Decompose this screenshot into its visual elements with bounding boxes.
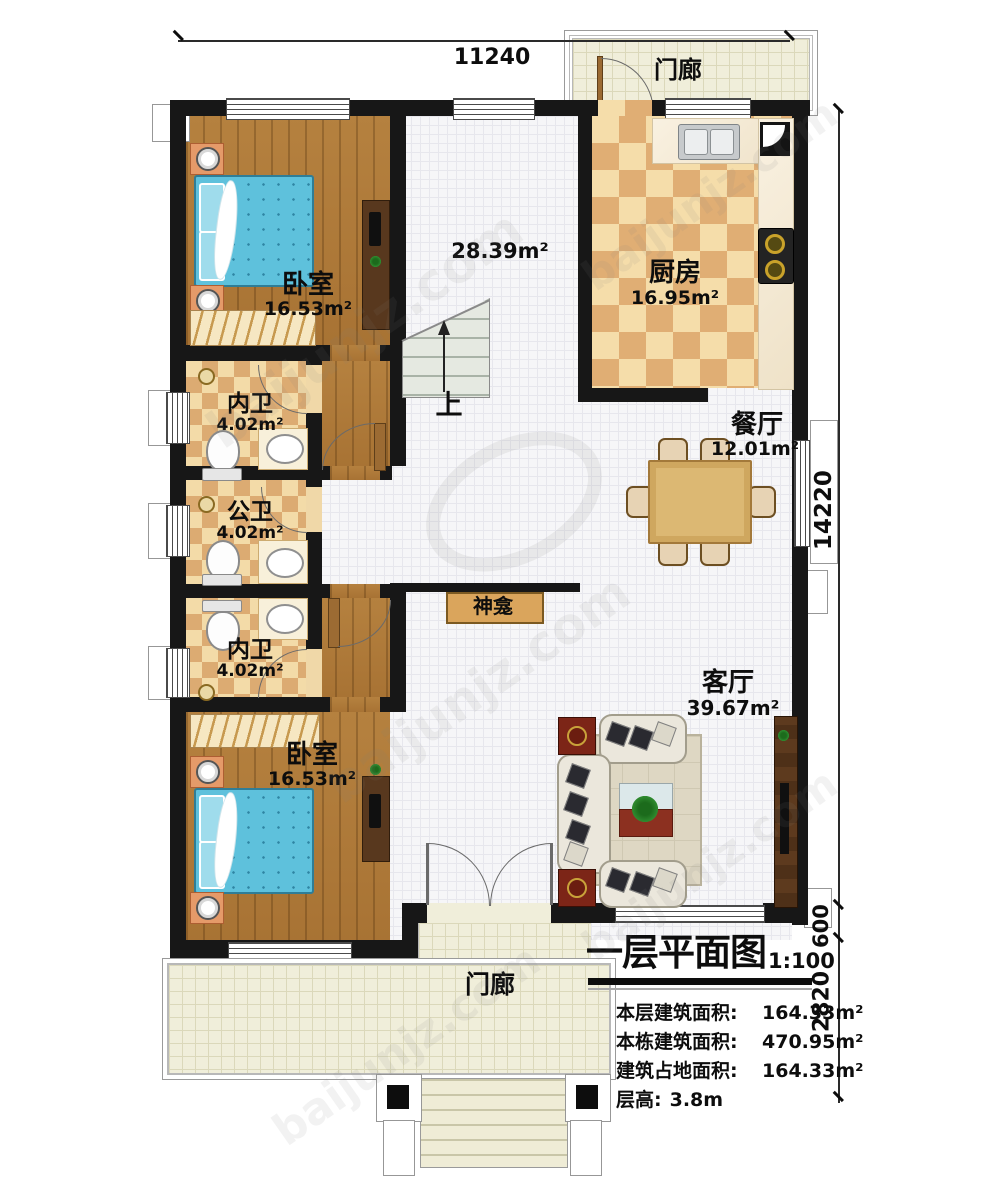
plant-icon — [778, 730, 789, 741]
toilet-tank — [202, 468, 242, 481]
hall-area-label: 28.39m² — [448, 240, 552, 262]
info-value: 470.95m² — [762, 1031, 863, 1053]
bedroom-top-door-opening — [330, 345, 380, 361]
wall-stub — [380, 345, 390, 361]
bath-top-label: 内卫 — [204, 392, 296, 416]
wall-kitchen-bottom — [578, 388, 708, 402]
dimension-top-label: 11240 — [437, 46, 547, 69]
plan-scale: 1:100 — [768, 949, 835, 973]
lamp-icon — [196, 896, 220, 920]
bath-mid-area: 4.02m² — [204, 525, 296, 543]
bath-mid-label: 公卫 — [204, 500, 296, 524]
sink-basin — [684, 129, 708, 155]
side-table-medallion — [567, 878, 587, 898]
dining-label: 餐厅 — [722, 412, 792, 439]
wall-corridor2-top-a — [306, 584, 330, 598]
main-door-gap — [427, 903, 551, 923]
tv-icon — [780, 783, 789, 854]
window-hall-top — [453, 98, 535, 120]
sink-icon — [266, 604, 304, 634]
living-area: 39.67m² — [678, 698, 788, 719]
bath-bottom-label: 内卫 — [204, 638, 296, 662]
porch-column-core — [576, 1085, 598, 1109]
kitchen-label: 厨房 — [632, 260, 718, 287]
info-label: 层高: — [616, 1085, 662, 1112]
shrine-label: 神龛 — [446, 596, 540, 617]
entry-steps — [420, 1078, 568, 1168]
bedroom-top-area: 16.53m² — [258, 300, 358, 320]
bedroom-top-label: 卧室 — [268, 272, 348, 299]
info-line: 建筑占地面积: 164.33m² — [616, 1056, 863, 1083]
dimension-line-right — [838, 110, 840, 1103]
plant-icon — [632, 796, 658, 822]
title-underline-thin — [588, 988, 812, 990]
monitor-icon — [369, 794, 381, 828]
stairs-arrow-line — [443, 332, 445, 392]
wall-bottom-door-left — [402, 903, 427, 923]
toilet-icon — [206, 430, 240, 472]
info-line: 本层建筑面积: 164.33m² — [616, 998, 863, 1025]
window-bedroom-top — [226, 98, 350, 120]
window-bath-top — [166, 392, 190, 444]
plan-title: 一层平面图 — [586, 922, 766, 976]
corridor2-door-gap — [330, 584, 380, 598]
side-table-medallion — [567, 726, 587, 746]
window-bath-mid — [166, 505, 190, 557]
burner — [765, 234, 785, 254]
ac-platform — [806, 570, 828, 614]
info-label: 本层建筑面积: — [616, 998, 762, 1025]
burner — [765, 260, 785, 280]
bath-top-area: 4.02m² — [204, 417, 296, 435]
shower-icon — [198, 368, 215, 385]
sink-basin — [710, 129, 734, 155]
wall-stub2 — [380, 697, 390, 712]
bath-top-door-gap — [306, 365, 322, 413]
info-line: 层高: 3.8m — [616, 1085, 723, 1112]
wall-bedroom-top-bottom — [186, 345, 330, 361]
title-underline — [588, 978, 812, 985]
info-value: 3.8m — [670, 1089, 723, 1111]
shower-icon — [198, 684, 215, 701]
corridor1-door-leaf — [374, 423, 386, 471]
porch-bottom-label: 门廊 — [452, 972, 528, 998]
lamp-icon — [196, 147, 220, 171]
dining-area: 12.01m² — [708, 440, 802, 460]
monitor-icon — [369, 212, 381, 246]
plant-icon — [370, 256, 381, 267]
wall-bath-sep2 — [186, 584, 306, 598]
porch-column-base — [383, 1120, 415, 1176]
bedroom-bottom-area: 16.53m² — [262, 770, 362, 790]
dimension-line-top — [178, 40, 790, 42]
bath-bottom-door-gap — [306, 649, 322, 697]
floor-plan: 门廊 上 28.39m² — [0, 0, 1000, 1188]
bedroom-bottom-label: 卧室 — [272, 742, 352, 769]
window-kitchen-top — [665, 98, 751, 120]
info-label: 建筑占地面积: — [616, 1056, 762, 1083]
wall-bedroom-top-right — [390, 116, 406, 361]
bath-bottom-area: 4.02m² — [204, 663, 296, 681]
dimension-right-main-label: 14220 — [812, 450, 836, 570]
living-label: 客厅 — [688, 670, 768, 697]
porch-bottom-floor — [168, 964, 610, 1074]
info-line: 本栋建筑面积: 470.95m² — [616, 1027, 863, 1054]
wall-corridor-bottom-right — [390, 583, 406, 712]
porch-bottom-extension — [418, 923, 591, 958]
plant-icon — [370, 764, 381, 775]
sink-icon — [266, 548, 304, 578]
porch-top-label: 门廊 — [646, 58, 710, 83]
stairs-arrow-head — [438, 320, 450, 335]
sink-icon — [266, 434, 304, 464]
window-bath-bottom — [166, 648, 190, 698]
plan-title-row: 一层平面图 1:100 — [586, 928, 816, 976]
info-value: 164.33m² — [762, 1002, 863, 1024]
dining-table — [648, 460, 752, 544]
porch-column-base — [570, 1120, 602, 1176]
bath-mid-door-gap — [306, 487, 322, 532]
lamp-icon — [196, 760, 220, 784]
stairs-up-label: 上 — [425, 392, 473, 420]
kitchen-door-gap — [598, 100, 652, 116]
half-wall-shrine — [392, 583, 580, 592]
info-value: 164.33m² — [762, 1060, 863, 1082]
wall-kitchen-left — [578, 116, 592, 400]
kitchen-area: 16.95m² — [626, 289, 724, 309]
porch-column-core — [387, 1085, 409, 1109]
toilet-tank — [202, 574, 242, 586]
bedroom-bottom-door-opening — [330, 697, 380, 712]
info-label: 本栋建筑面积: — [616, 1027, 762, 1054]
chair — [748, 486, 776, 518]
